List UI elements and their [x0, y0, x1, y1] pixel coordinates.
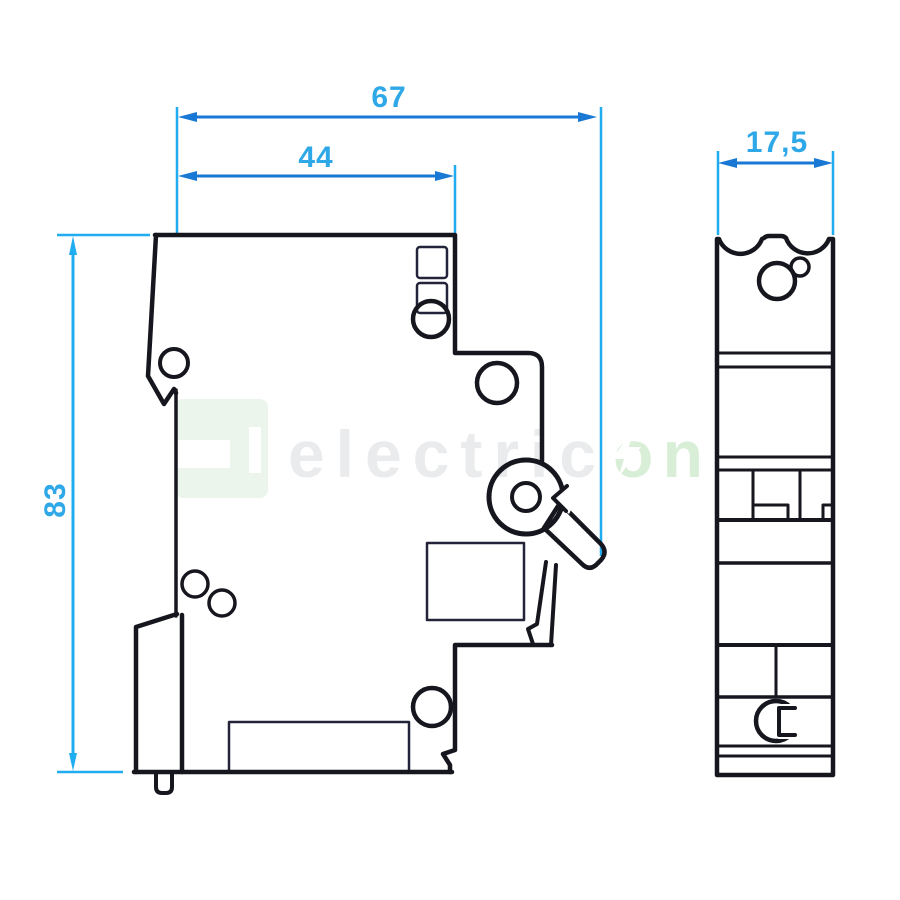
arrow-left-icon [718, 158, 737, 168]
dim-text-module-width: 17,5 [746, 126, 808, 159]
bottom-tab [156, 772, 172, 793]
electricon-logo [168, 399, 268, 498]
rivet-circle [413, 688, 451, 726]
lever-linkage-leg [528, 562, 556, 645]
arrow-down-icon [69, 753, 77, 771]
din-clip-profile [136, 614, 182, 772]
dim-text-case-depth: 44 [298, 141, 333, 174]
toggle-knob-axle [512, 483, 540, 511]
dim-module-width: 17,5 [718, 126, 833, 168]
logo-cut-v [249, 427, 261, 473]
side-view [134, 235, 605, 793]
rivet-circle [209, 590, 235, 616]
arrow-left-icon [178, 171, 197, 181]
front-view [717, 236, 833, 775]
case-lower-right-profile [443, 645, 552, 772]
watermark-word-gray: electric [288, 417, 598, 491]
dim-text-height: 83 [39, 482, 72, 517]
dim-height: 83 [39, 236, 77, 771]
dim-total-depth: 67 [178, 81, 597, 122]
arrow-right-icon [578, 112, 597, 122]
watermark: electricon [168, 399, 705, 498]
rivet-circle [477, 363, 517, 403]
rivet-circle [182, 571, 208, 597]
top-terminal-box-2 [417, 283, 447, 313]
technical-drawing-page: electricon 67 44 17,5 [0, 0, 900, 900]
mid-internal-box [427, 543, 524, 620]
arrow-right-icon [814, 158, 833, 168]
rivet-circle [160, 349, 188, 377]
arrow-right-icon [435, 171, 454, 181]
dim-text-total-depth: 67 [371, 81, 406, 114]
breaker-dimension-drawing: electricon 67 44 17,5 [0, 0, 900, 900]
arrow-up-icon [69, 236, 77, 255]
front-rivet-circle [759, 263, 795, 299]
watermark-text: electricon [288, 417, 705, 491]
dim-case-depth: 44 [178, 141, 454, 181]
rivet-circle [413, 301, 449, 337]
arrow-left-icon [178, 112, 197, 122]
front-terminal-details [753, 470, 833, 520]
bottom-internal-box [229, 722, 409, 772]
top-terminal-box-1 [417, 247, 447, 278]
toggle-lever-handle [544, 503, 605, 568]
